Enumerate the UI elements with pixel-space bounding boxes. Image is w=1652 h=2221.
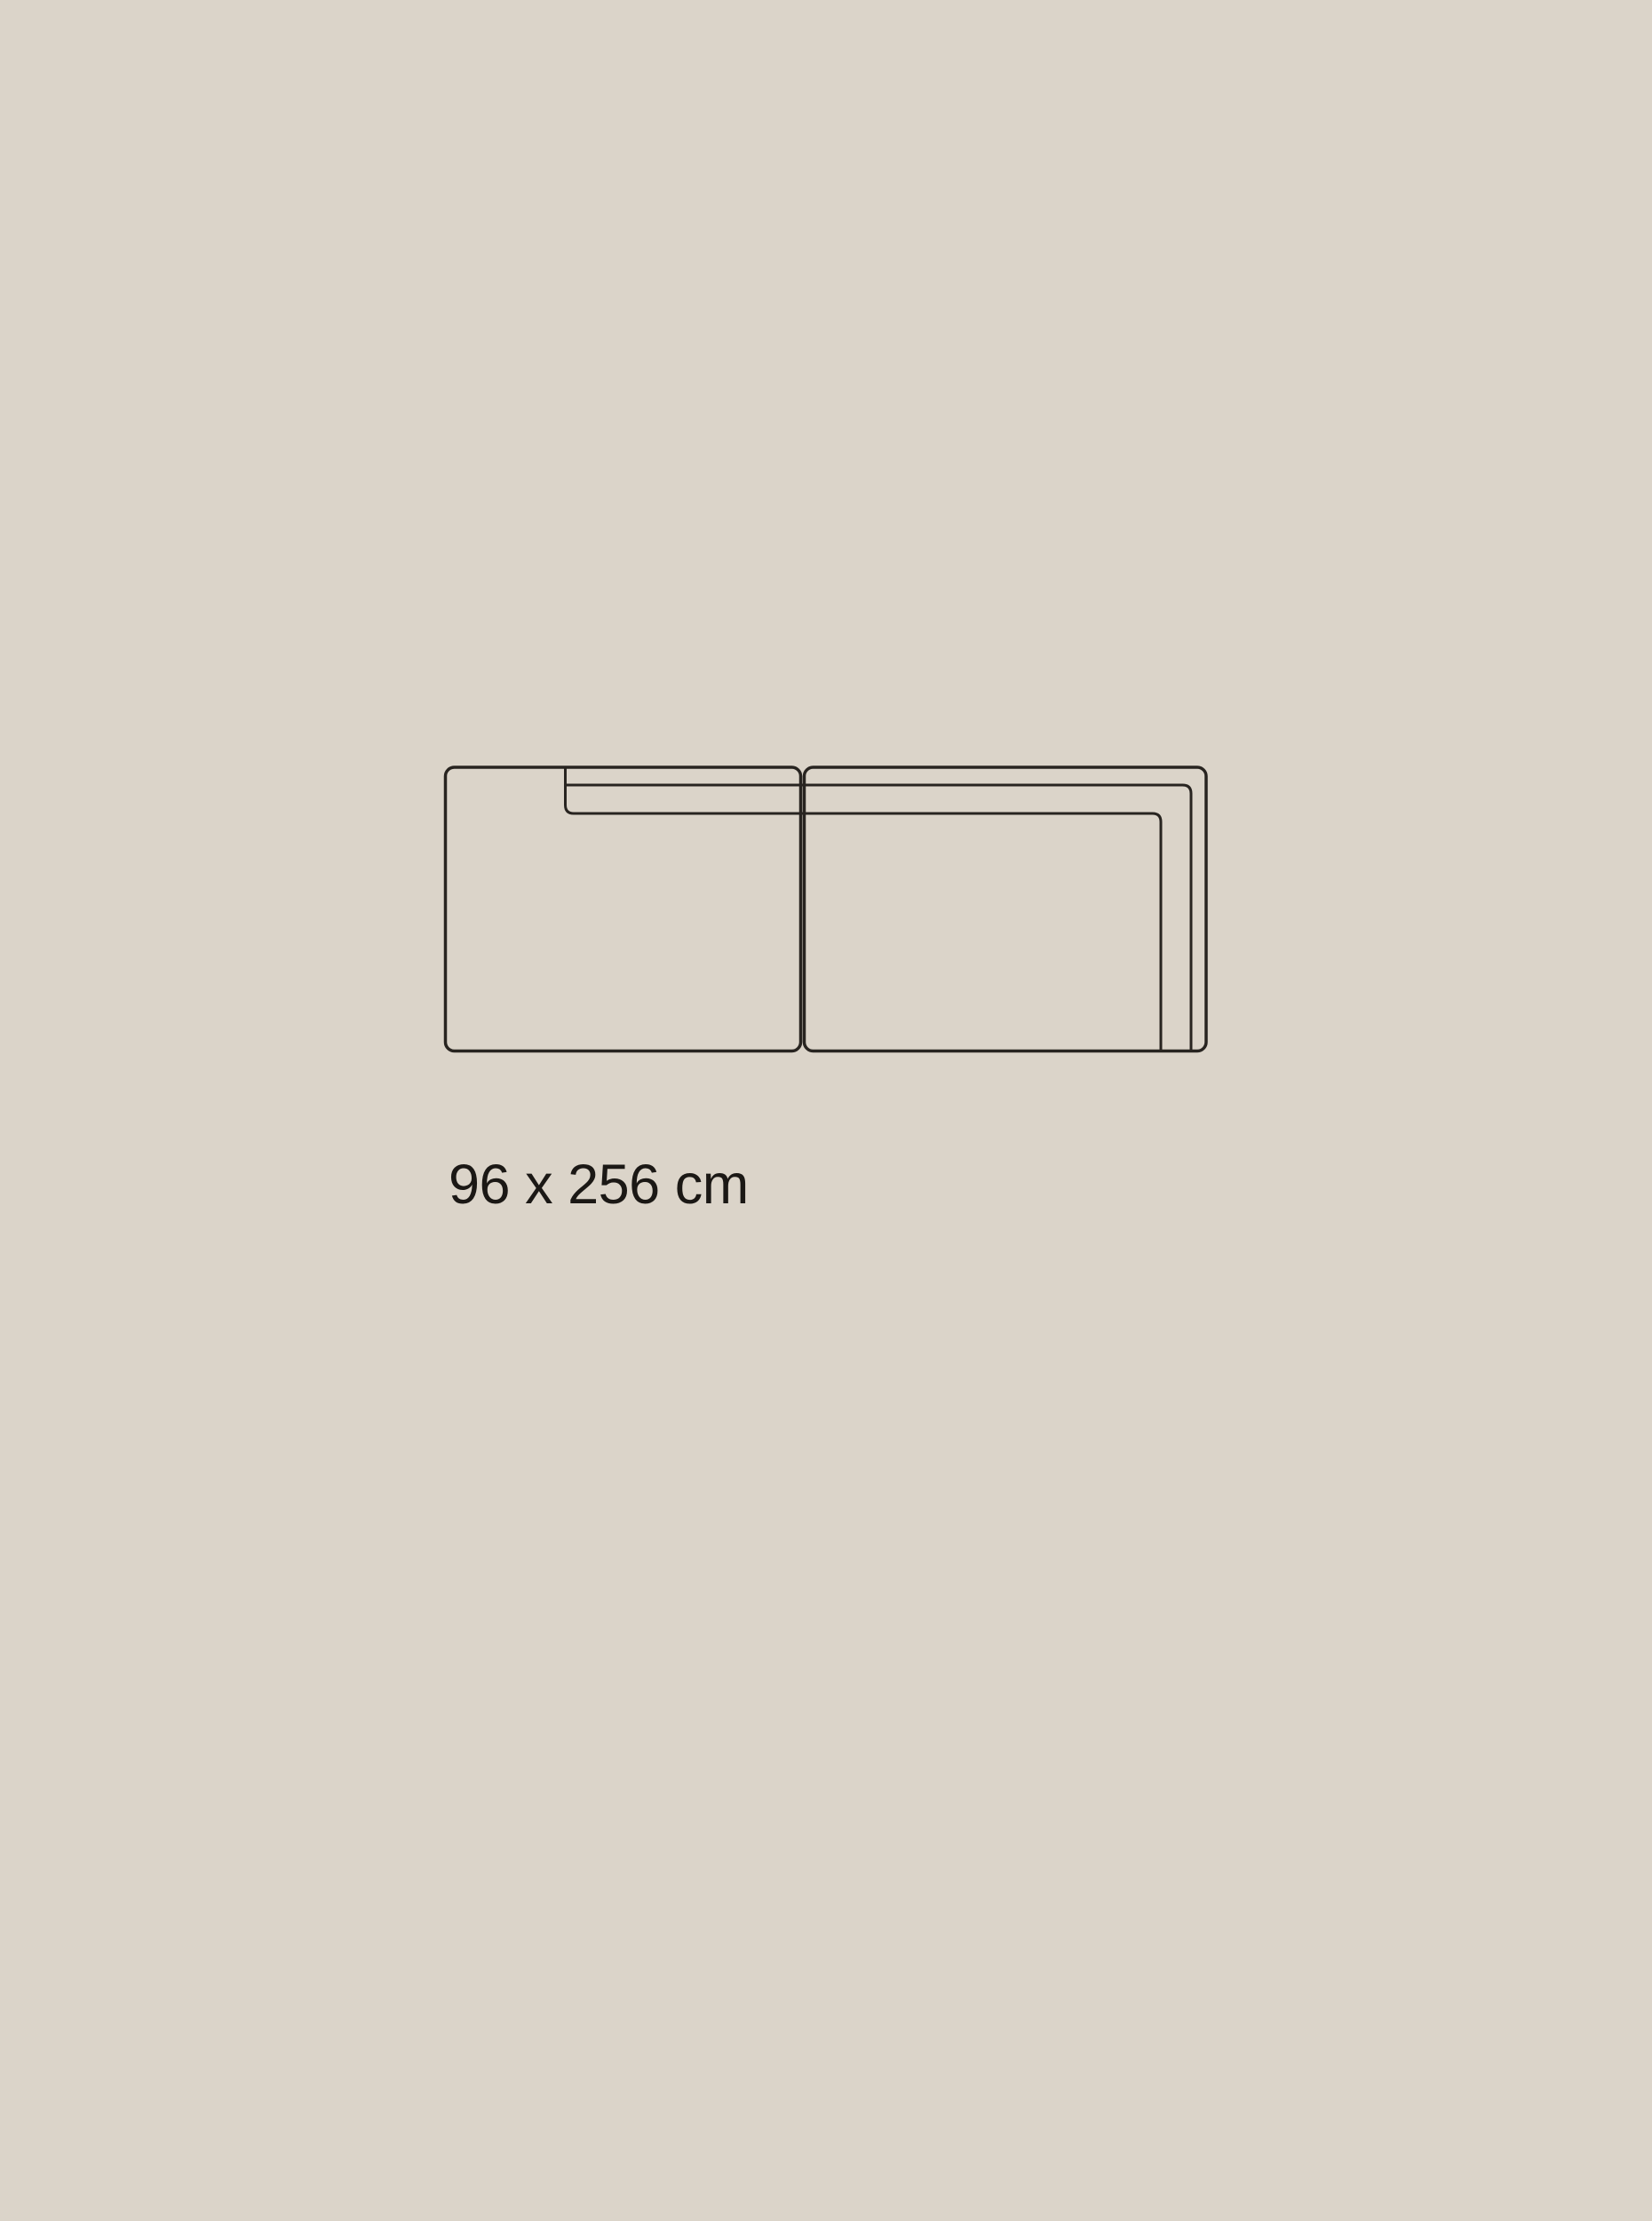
backrest-front-edge-line bbox=[566, 767, 1162, 1051]
dimension-label: 96 x 256 cm bbox=[449, 1157, 749, 1213]
right-module-outline bbox=[805, 767, 1207, 1051]
left-module-outline bbox=[446, 767, 801, 1051]
sofa-top-view-diagram bbox=[0, 0, 1652, 2221]
canvas: 96 x 256 cm bbox=[0, 0, 1652, 2221]
backrest-cushion-edge-line bbox=[565, 785, 1191, 1051]
